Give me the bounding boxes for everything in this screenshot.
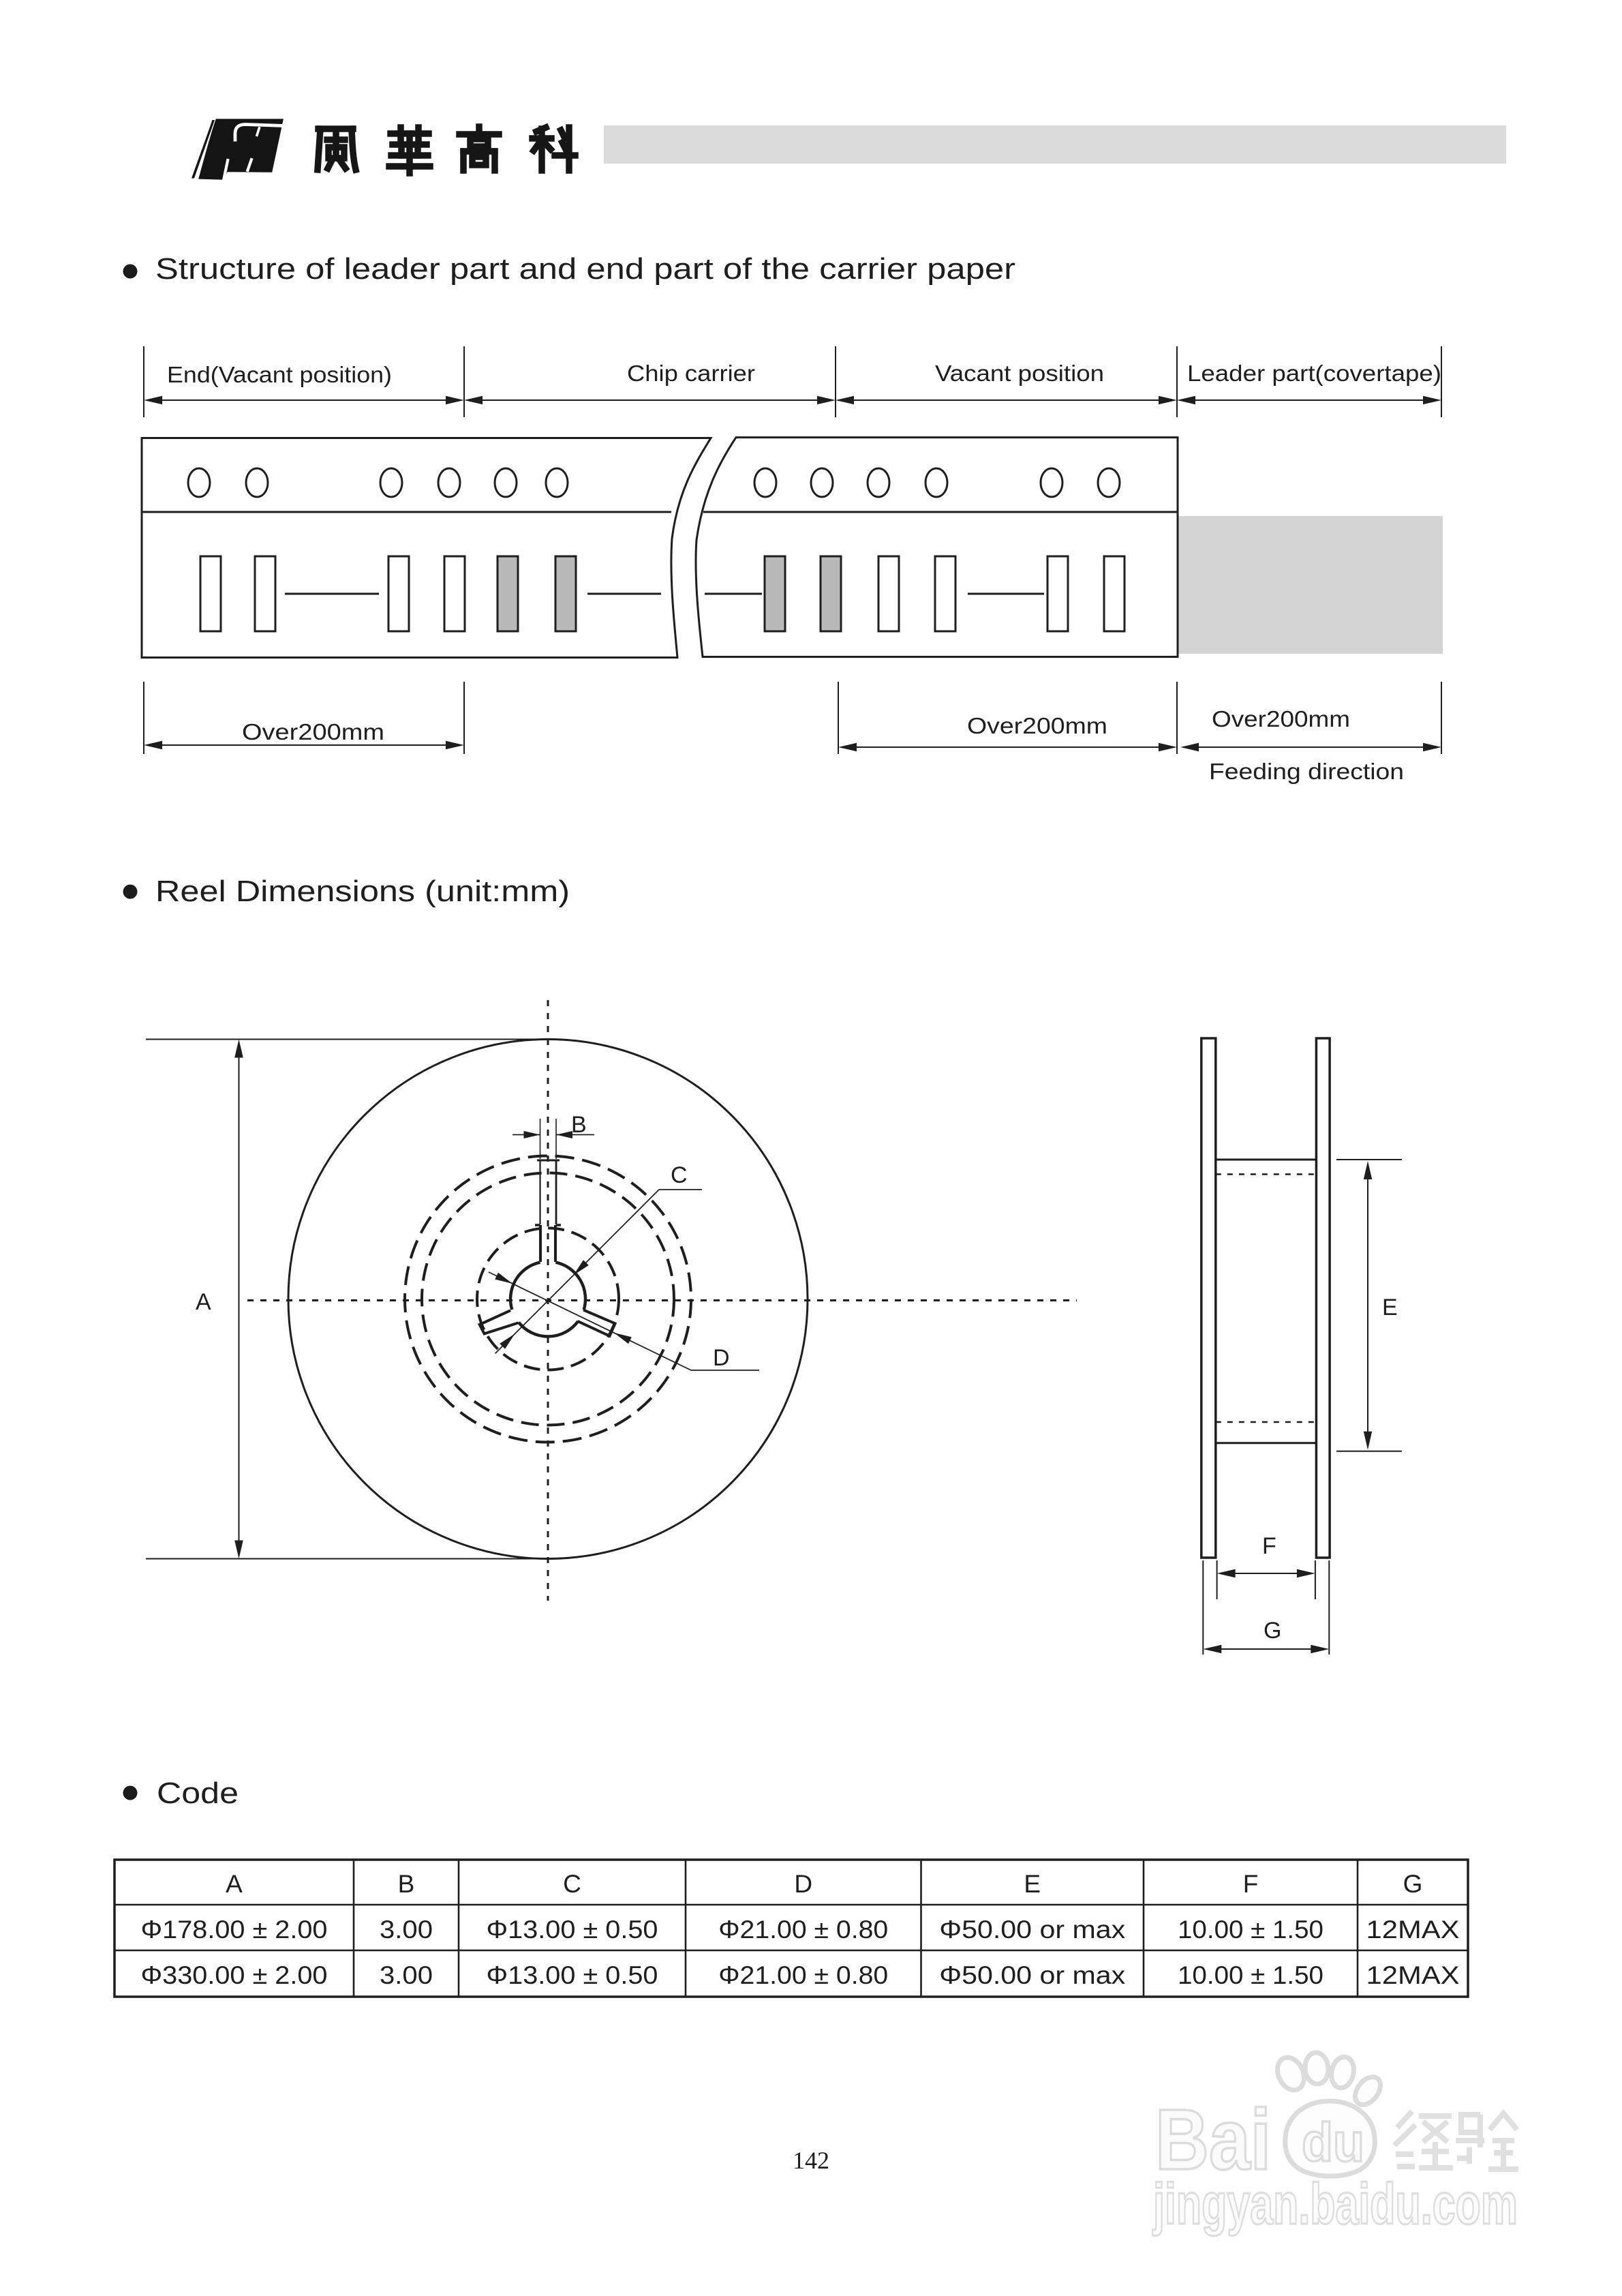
svg-text:Leader part(covertape): Leader part(covertape): [1187, 361, 1441, 386]
svg-text:G: G: [1264, 1618, 1281, 1644]
svg-text:Φ21.00 ± 0.80: Φ21.00 ± 0.80: [718, 1916, 888, 1944]
svg-text:Feeding direction: Feeding direction: [1209, 759, 1404, 784]
svg-text:Φ330.00 ± 2.00: Φ330.00 ± 2.00: [141, 1961, 328, 1989]
svg-text:Φ50.00 or max: Φ50.00 or max: [939, 1916, 1126, 1944]
svg-text:Over200mm: Over200mm: [1212, 706, 1350, 731]
svg-text:3.00: 3.00: [380, 1916, 433, 1944]
svg-text:Chip carrier: Chip carrier: [627, 361, 755, 386]
svg-text:Φ13.00 ± 0.50: Φ13.00 ± 0.50: [487, 1916, 658, 1944]
svg-text:End(Vacant position): End(Vacant position): [167, 362, 392, 387]
svg-text:A: A: [226, 1870, 243, 1898]
svg-text:B: B: [571, 1112, 587, 1138]
svg-text:Φ50.00 or max: Φ50.00 or max: [939, 1961, 1126, 1989]
svg-text:D: D: [794, 1870, 812, 1898]
svg-text:Structure of leader part and e: Structure of leader part and end part of…: [155, 252, 1015, 286]
svg-text:12MAX: 12MAX: [1366, 1916, 1460, 1944]
svg-text:du: du: [1302, 2112, 1364, 2173]
svg-text:3.00: 3.00: [380, 1961, 433, 1989]
svg-text:A: A: [196, 1289, 211, 1315]
svg-text:10.00 ± 1.50: 10.00 ± 1.50: [1178, 1916, 1323, 1944]
svg-text:Φ21.00 ± 0.80: Φ21.00 ± 0.80: [718, 1961, 888, 1989]
svg-text:E: E: [1024, 1870, 1041, 1898]
svg-text:Code: Code: [157, 1777, 239, 1810]
svg-text:jingyan.baidu.com: jingyan.baidu.com: [1152, 2172, 1518, 2236]
svg-text:Over200mm: Over200mm: [967, 713, 1107, 738]
svg-text:G: G: [1403, 1870, 1423, 1898]
svg-text:C: C: [563, 1870, 581, 1898]
svg-text:Φ13.00 ± 0.50: Φ13.00 ± 0.50: [487, 1961, 658, 1989]
svg-text:B: B: [398, 1870, 415, 1898]
svg-text:Vacant position: Vacant position: [935, 361, 1104, 386]
svg-text:F: F: [1262, 1533, 1276, 1559]
svg-text:E: E: [1382, 1295, 1398, 1320]
svg-text:12MAX: 12MAX: [1366, 1961, 1460, 1989]
svg-text:D: D: [713, 1345, 730, 1371]
svg-text:C: C: [671, 1162, 688, 1188]
svg-text:142: 142: [793, 2147, 829, 2174]
svg-text:10.00 ± 1.50: 10.00 ± 1.50: [1178, 1961, 1323, 1989]
svg-text:Φ178.00 ± 2.00: Φ178.00 ± 2.00: [141, 1916, 328, 1944]
svg-text:Over200mm: Over200mm: [242, 719, 384, 744]
svg-text:Reel Dimensions (unit:mm): Reel Dimensions (unit:mm): [155, 875, 570, 908]
svg-text:F: F: [1243, 1870, 1259, 1898]
